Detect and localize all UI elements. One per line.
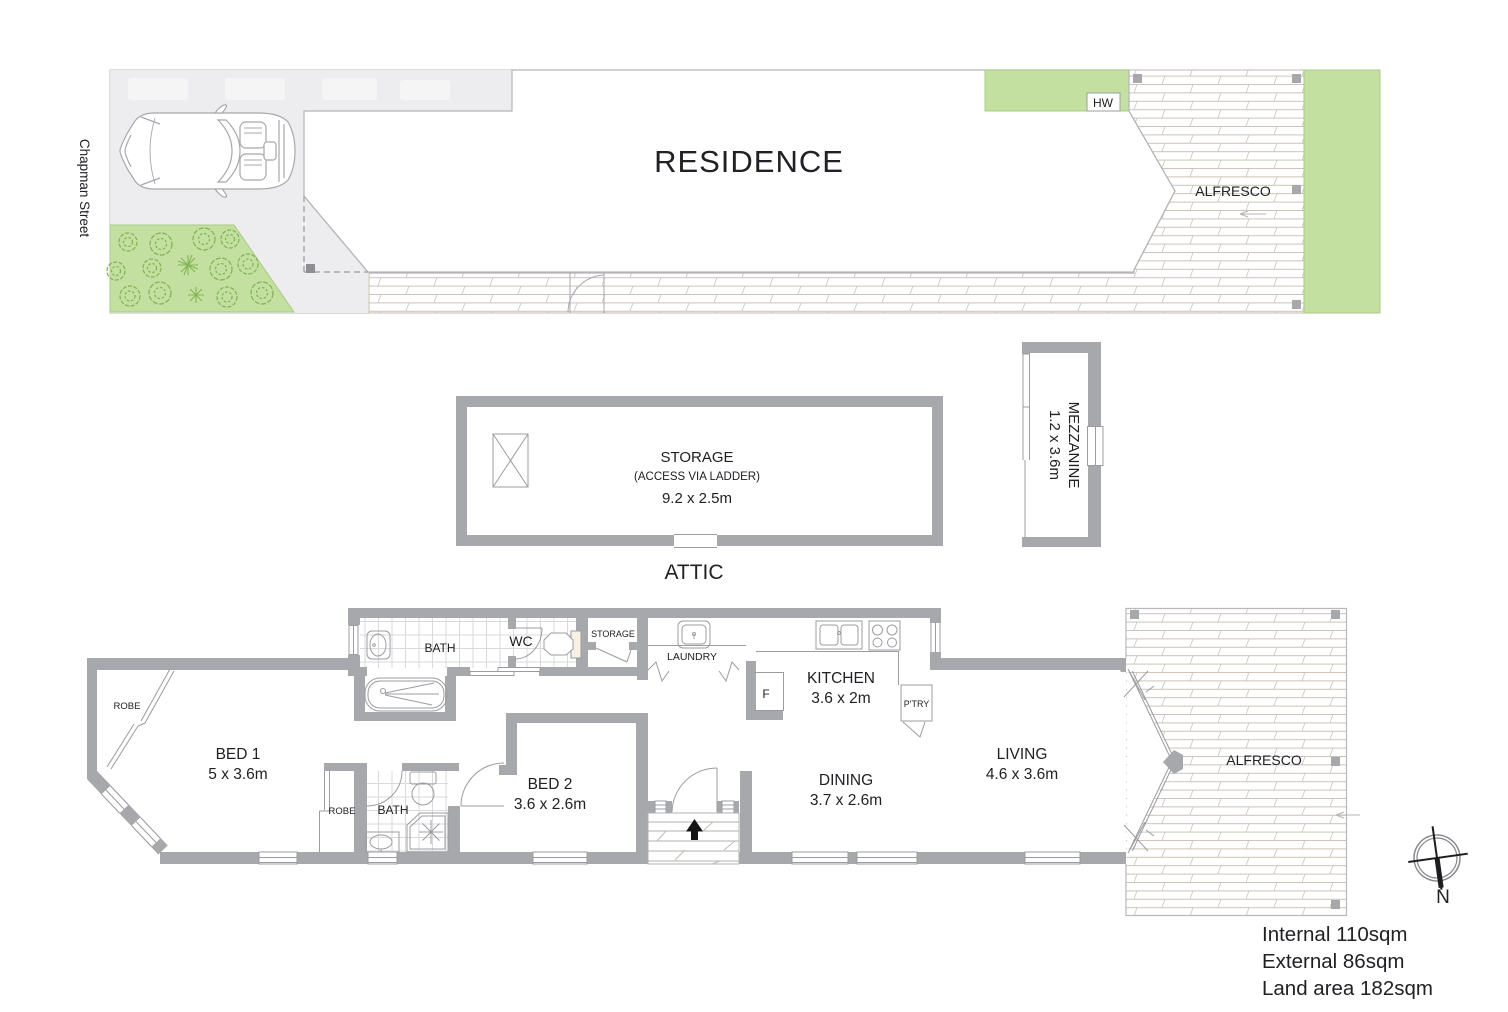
svg-text:3.7 x 2.6m: 3.7 x 2.6m xyxy=(810,792,882,809)
svg-text:1.2 x 3.6m: 1.2 x 3.6m xyxy=(1046,410,1063,480)
svg-text:4.6 x 3.6m: 4.6 x 3.6m xyxy=(986,766,1058,783)
svg-text:LIVING: LIVING xyxy=(997,746,1048,763)
svg-text:LAUNDRY: LAUNDRY xyxy=(667,651,717,663)
svg-text:MEZZANINE: MEZZANINE xyxy=(1065,402,1082,489)
svg-text:3.6 x 2.6m: 3.6 x 2.6m xyxy=(514,796,586,813)
svg-text:5 x 3.6m: 5 x 3.6m xyxy=(208,766,267,783)
svg-text:STORAGE: STORAGE xyxy=(660,449,733,466)
svg-text:BED 1: BED 1 xyxy=(216,746,261,763)
svg-text:9.2 x 2.5m: 9.2 x 2.5m xyxy=(662,490,732,507)
svg-text:ROBE: ROBE xyxy=(329,806,356,817)
svg-text:HW: HW xyxy=(1093,96,1114,110)
svg-text:ALFRESCO: ALFRESCO xyxy=(1195,183,1271,199)
svg-text:P'TRY: P'TRY xyxy=(904,699,930,709)
svg-text:ALFRESCO: ALFRESCO xyxy=(1226,752,1302,768)
svg-text:ATTIC: ATTIC xyxy=(664,561,723,584)
svg-text:Internal 110sqm: Internal 110sqm xyxy=(1262,923,1407,946)
svg-text:ROBE: ROBE xyxy=(114,701,141,712)
svg-text:Chapman Street: Chapman Street xyxy=(77,139,92,238)
svg-text:BATH: BATH xyxy=(424,641,455,655)
svg-text:DINING: DINING xyxy=(819,772,873,789)
svg-text:(ACCESS VIA LADDER): (ACCESS VIA LADDER) xyxy=(634,471,760,483)
svg-text:RESIDENCE: RESIDENCE xyxy=(654,144,844,179)
svg-text:External 86sqm: External 86sqm xyxy=(1262,950,1404,973)
svg-text:Land area 182sqm: Land area 182sqm xyxy=(1262,977,1433,1000)
svg-text:3.6 x 2m: 3.6 x 2m xyxy=(811,690,870,707)
svg-text:N: N xyxy=(1436,887,1450,908)
svg-text:F: F xyxy=(762,687,769,701)
svg-text:WC: WC xyxy=(509,633,532,649)
svg-text:BED 2: BED 2 xyxy=(528,776,573,793)
svg-text:KITCHEN: KITCHEN xyxy=(807,670,875,687)
svg-text:STORAGE: STORAGE xyxy=(591,629,635,639)
svg-text:BATH: BATH xyxy=(377,803,408,817)
